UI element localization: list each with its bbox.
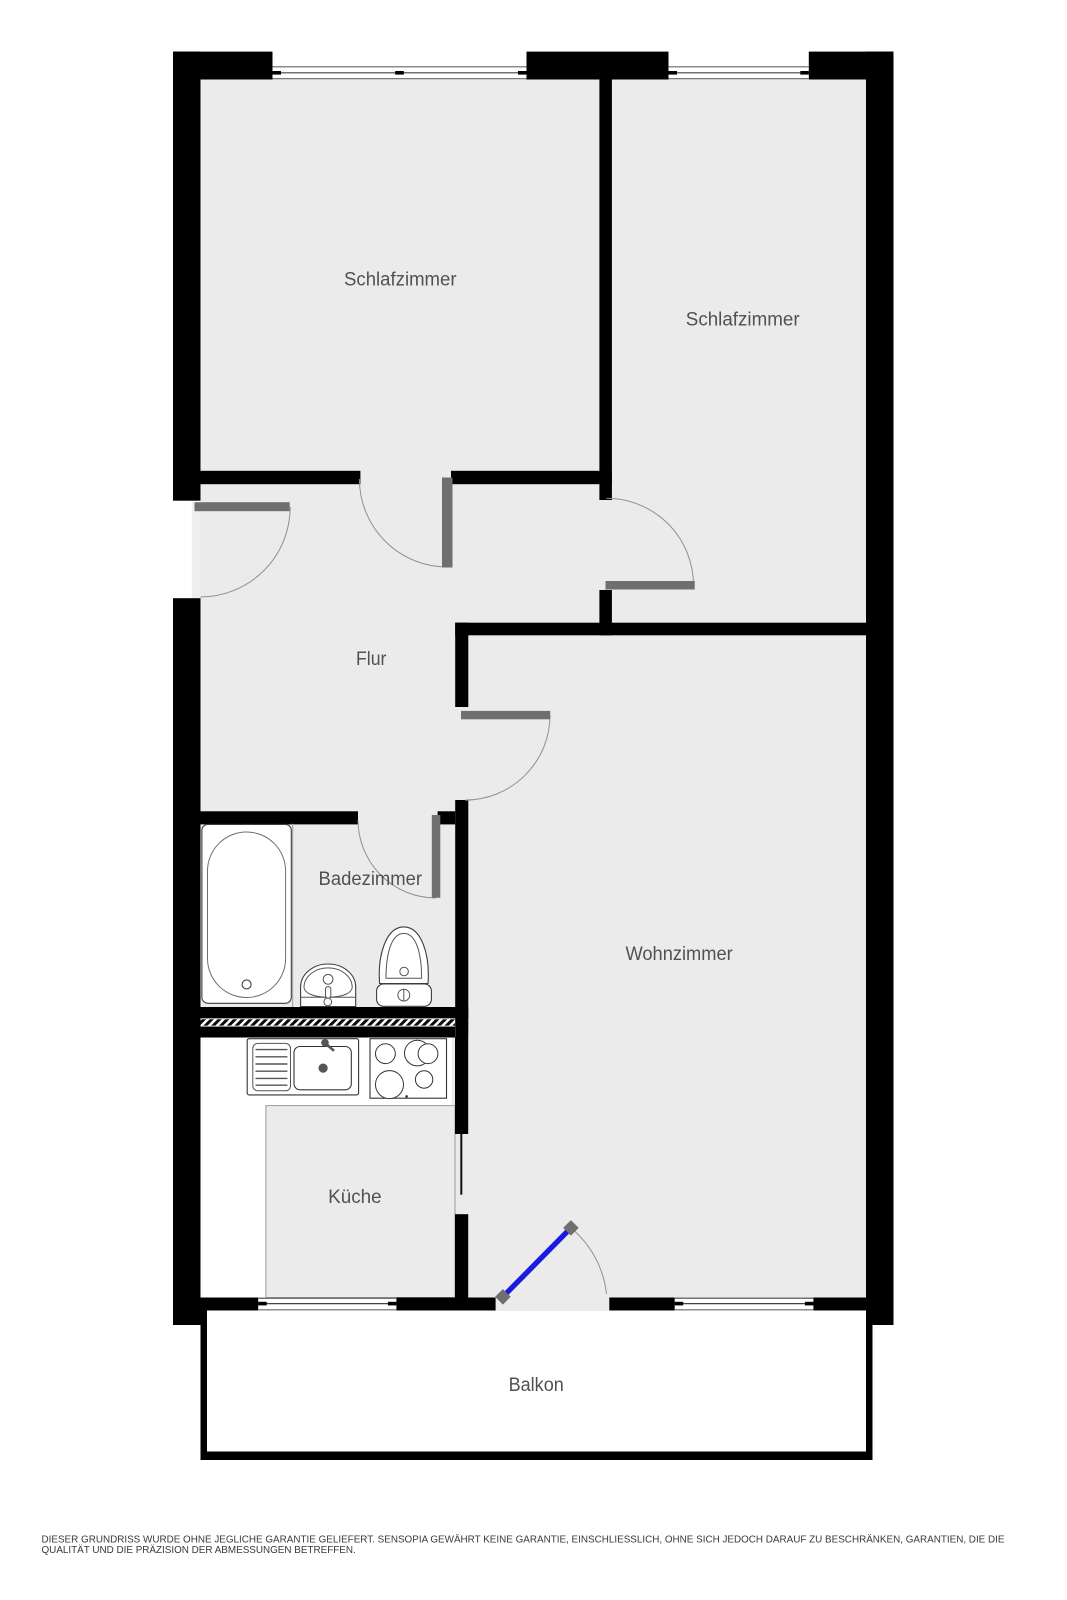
svg-text:DIESER GRUNDRISS WURDE OHNE JE: DIESER GRUNDRISS WURDE OHNE JEGLICHE GAR… [42, 1535, 1005, 1546]
svg-text:Küche: Küche [328, 1186, 382, 1208]
svg-text:Wohnzimmer: Wohnzimmer [626, 943, 734, 965]
svg-text:Schlafzimmer: Schlafzimmer [686, 309, 800, 331]
svg-text:Badezimmer: Badezimmer [319, 868, 423, 890]
svg-text:Schlafzimmer: Schlafzimmer [344, 269, 457, 291]
svg-text:Flur: Flur [356, 648, 387, 670]
svg-text:QUALITÄT UND DIE PRÄZISION DER: QUALITÄT UND DIE PRÄZISION DER ABMESSUNG… [42, 1545, 356, 1556]
svg-text:Balkon: Balkon [509, 1374, 564, 1396]
